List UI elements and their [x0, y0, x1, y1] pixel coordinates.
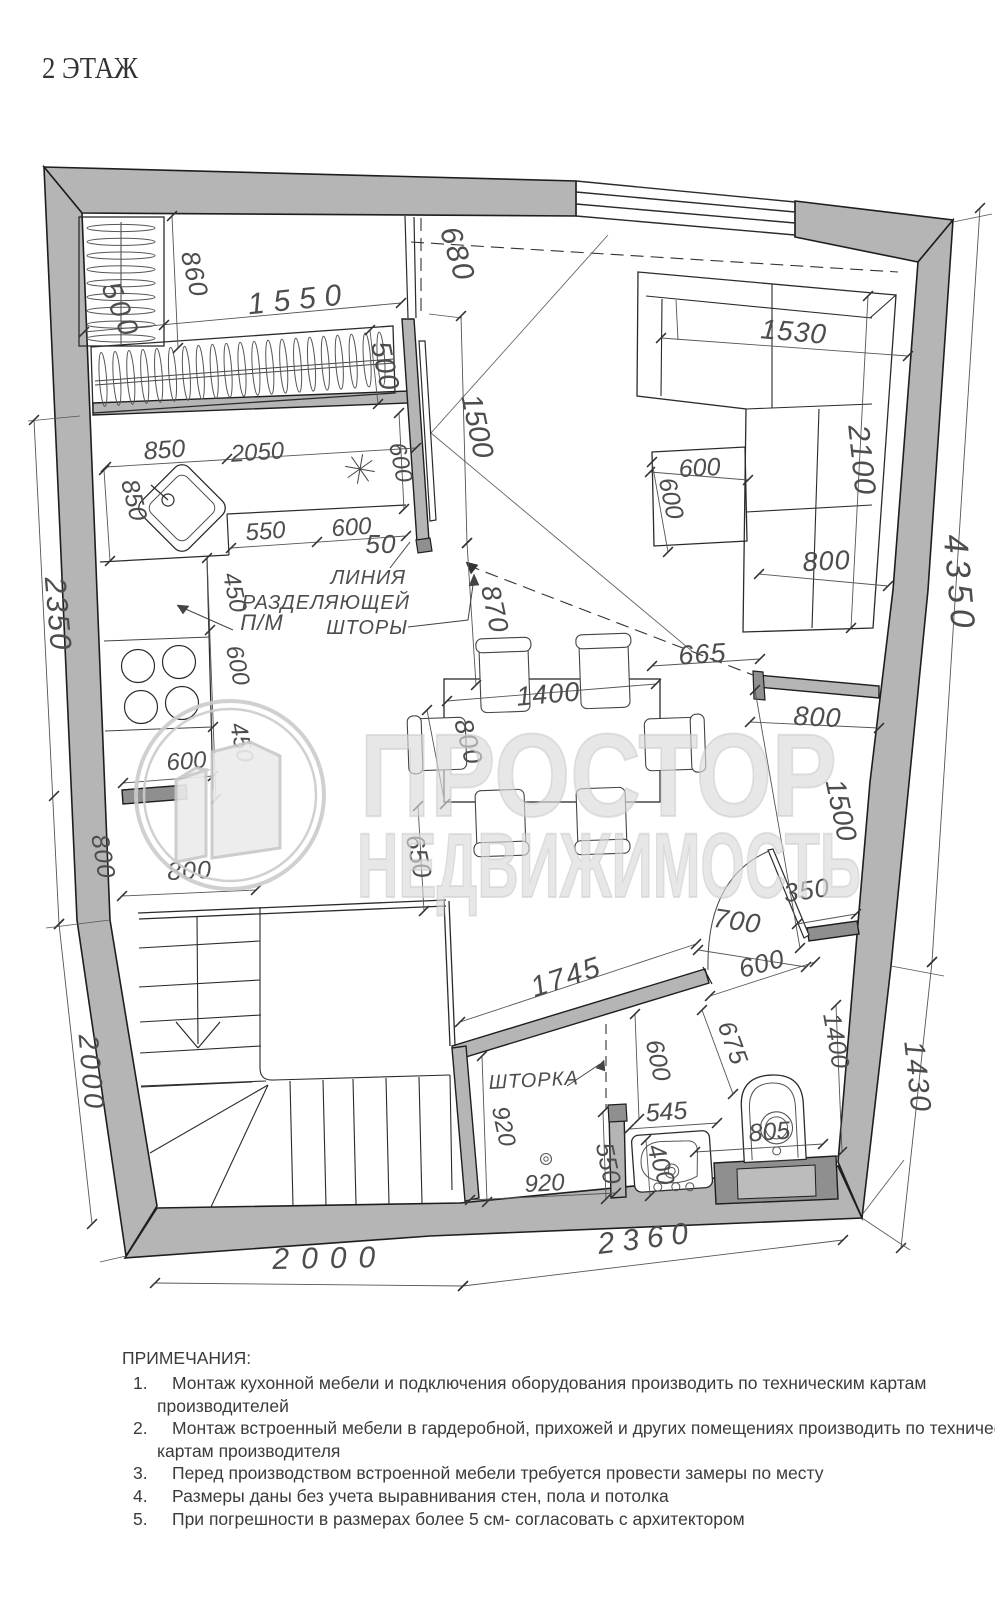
svg-text:2050: 2050 — [229, 437, 286, 468]
svg-text:1400: 1400 — [515, 676, 581, 711]
svg-text:2350: 2350 — [38, 575, 77, 653]
svg-text:ПРИМЕЧАНИЯ:: ПРИМЕЧАНИЯ: — [122, 1348, 251, 1368]
svg-text:545: 545 — [645, 1097, 689, 1128]
svg-text:600: 600 — [678, 453, 721, 483]
svg-text:665: 665 — [677, 637, 727, 670]
svg-text:2 ЭТАЖ: 2 ЭТАЖ — [42, 50, 138, 85]
svg-text:Монтаж кухонной мебели и подкл: Монтаж кухонной мебели и подключения обо… — [172, 1373, 926, 1393]
svg-text:Перед производством встроенной: Перед производством встроенной мебели тр… — [172, 1463, 824, 1483]
svg-text:1.: 1. — [133, 1373, 148, 1393]
svg-text:800: 800 — [802, 545, 852, 577]
svg-text:4.: 4. — [133, 1486, 148, 1506]
svg-text:2.: 2. — [133, 1418, 148, 1438]
svg-text:1530: 1530 — [759, 313, 828, 350]
svg-text:картам производителя: картам производителя — [157, 1441, 340, 1461]
svg-text:805: 805 — [748, 1117, 792, 1148]
svg-text:2000: 2000 — [271, 1241, 387, 1276]
svg-text:производителей: производителей — [157, 1396, 289, 1416]
svg-text:ЛИНИЯ: ЛИНИЯ — [329, 567, 406, 589]
svg-text:НЕДВИЖИМОСТЬ: НЕДВИЖИМОСТЬ — [357, 815, 861, 917]
svg-text:ШТОРЫ: ШТОРЫ — [326, 617, 408, 639]
svg-text:П/М: П/М — [240, 610, 283, 635]
svg-text:50: 50 — [366, 529, 397, 559]
svg-text:850: 850 — [143, 435, 187, 466]
svg-text:550: 550 — [245, 517, 287, 547]
svg-text:3.: 3. — [133, 1463, 148, 1483]
svg-text:5.: 5. — [133, 1509, 148, 1529]
svg-text:Монтаж встроенный мебели в гар: Монтаж встроенный мебели в гардеробной, … — [172, 1418, 995, 1438]
svg-text:При погрешности в размерах бол: При погрешности в размерах более 5 см- с… — [172, 1509, 745, 1529]
svg-text:Размеры даны без учета выравни: Размеры даны без учета выравнивания стен… — [172, 1486, 669, 1506]
svg-text:920: 920 — [524, 1169, 566, 1198]
